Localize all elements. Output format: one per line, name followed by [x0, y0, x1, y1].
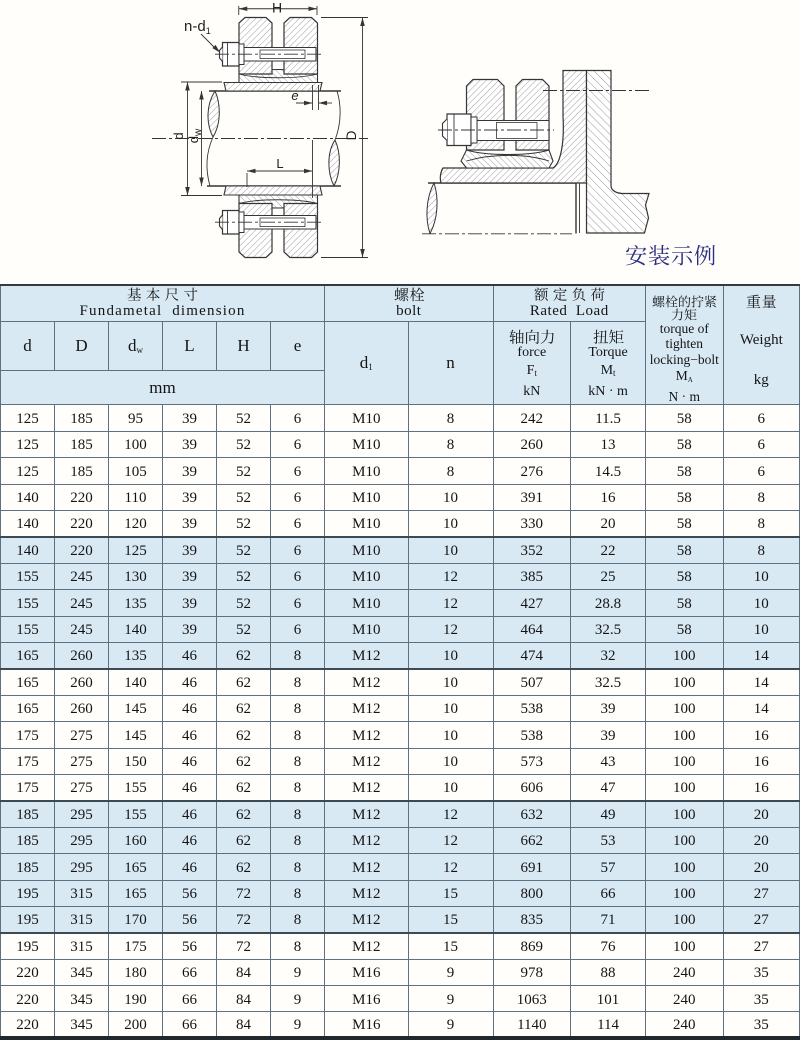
svg-text:e: e: [291, 88, 298, 103]
svg-text:H: H: [272, 0, 282, 16]
svg-text:n-d1: n-d1: [184, 18, 211, 36]
svg-text:d: d: [171, 132, 186, 139]
svg-text:L: L: [276, 156, 283, 171]
svg-text:D: D: [344, 130, 359, 140]
